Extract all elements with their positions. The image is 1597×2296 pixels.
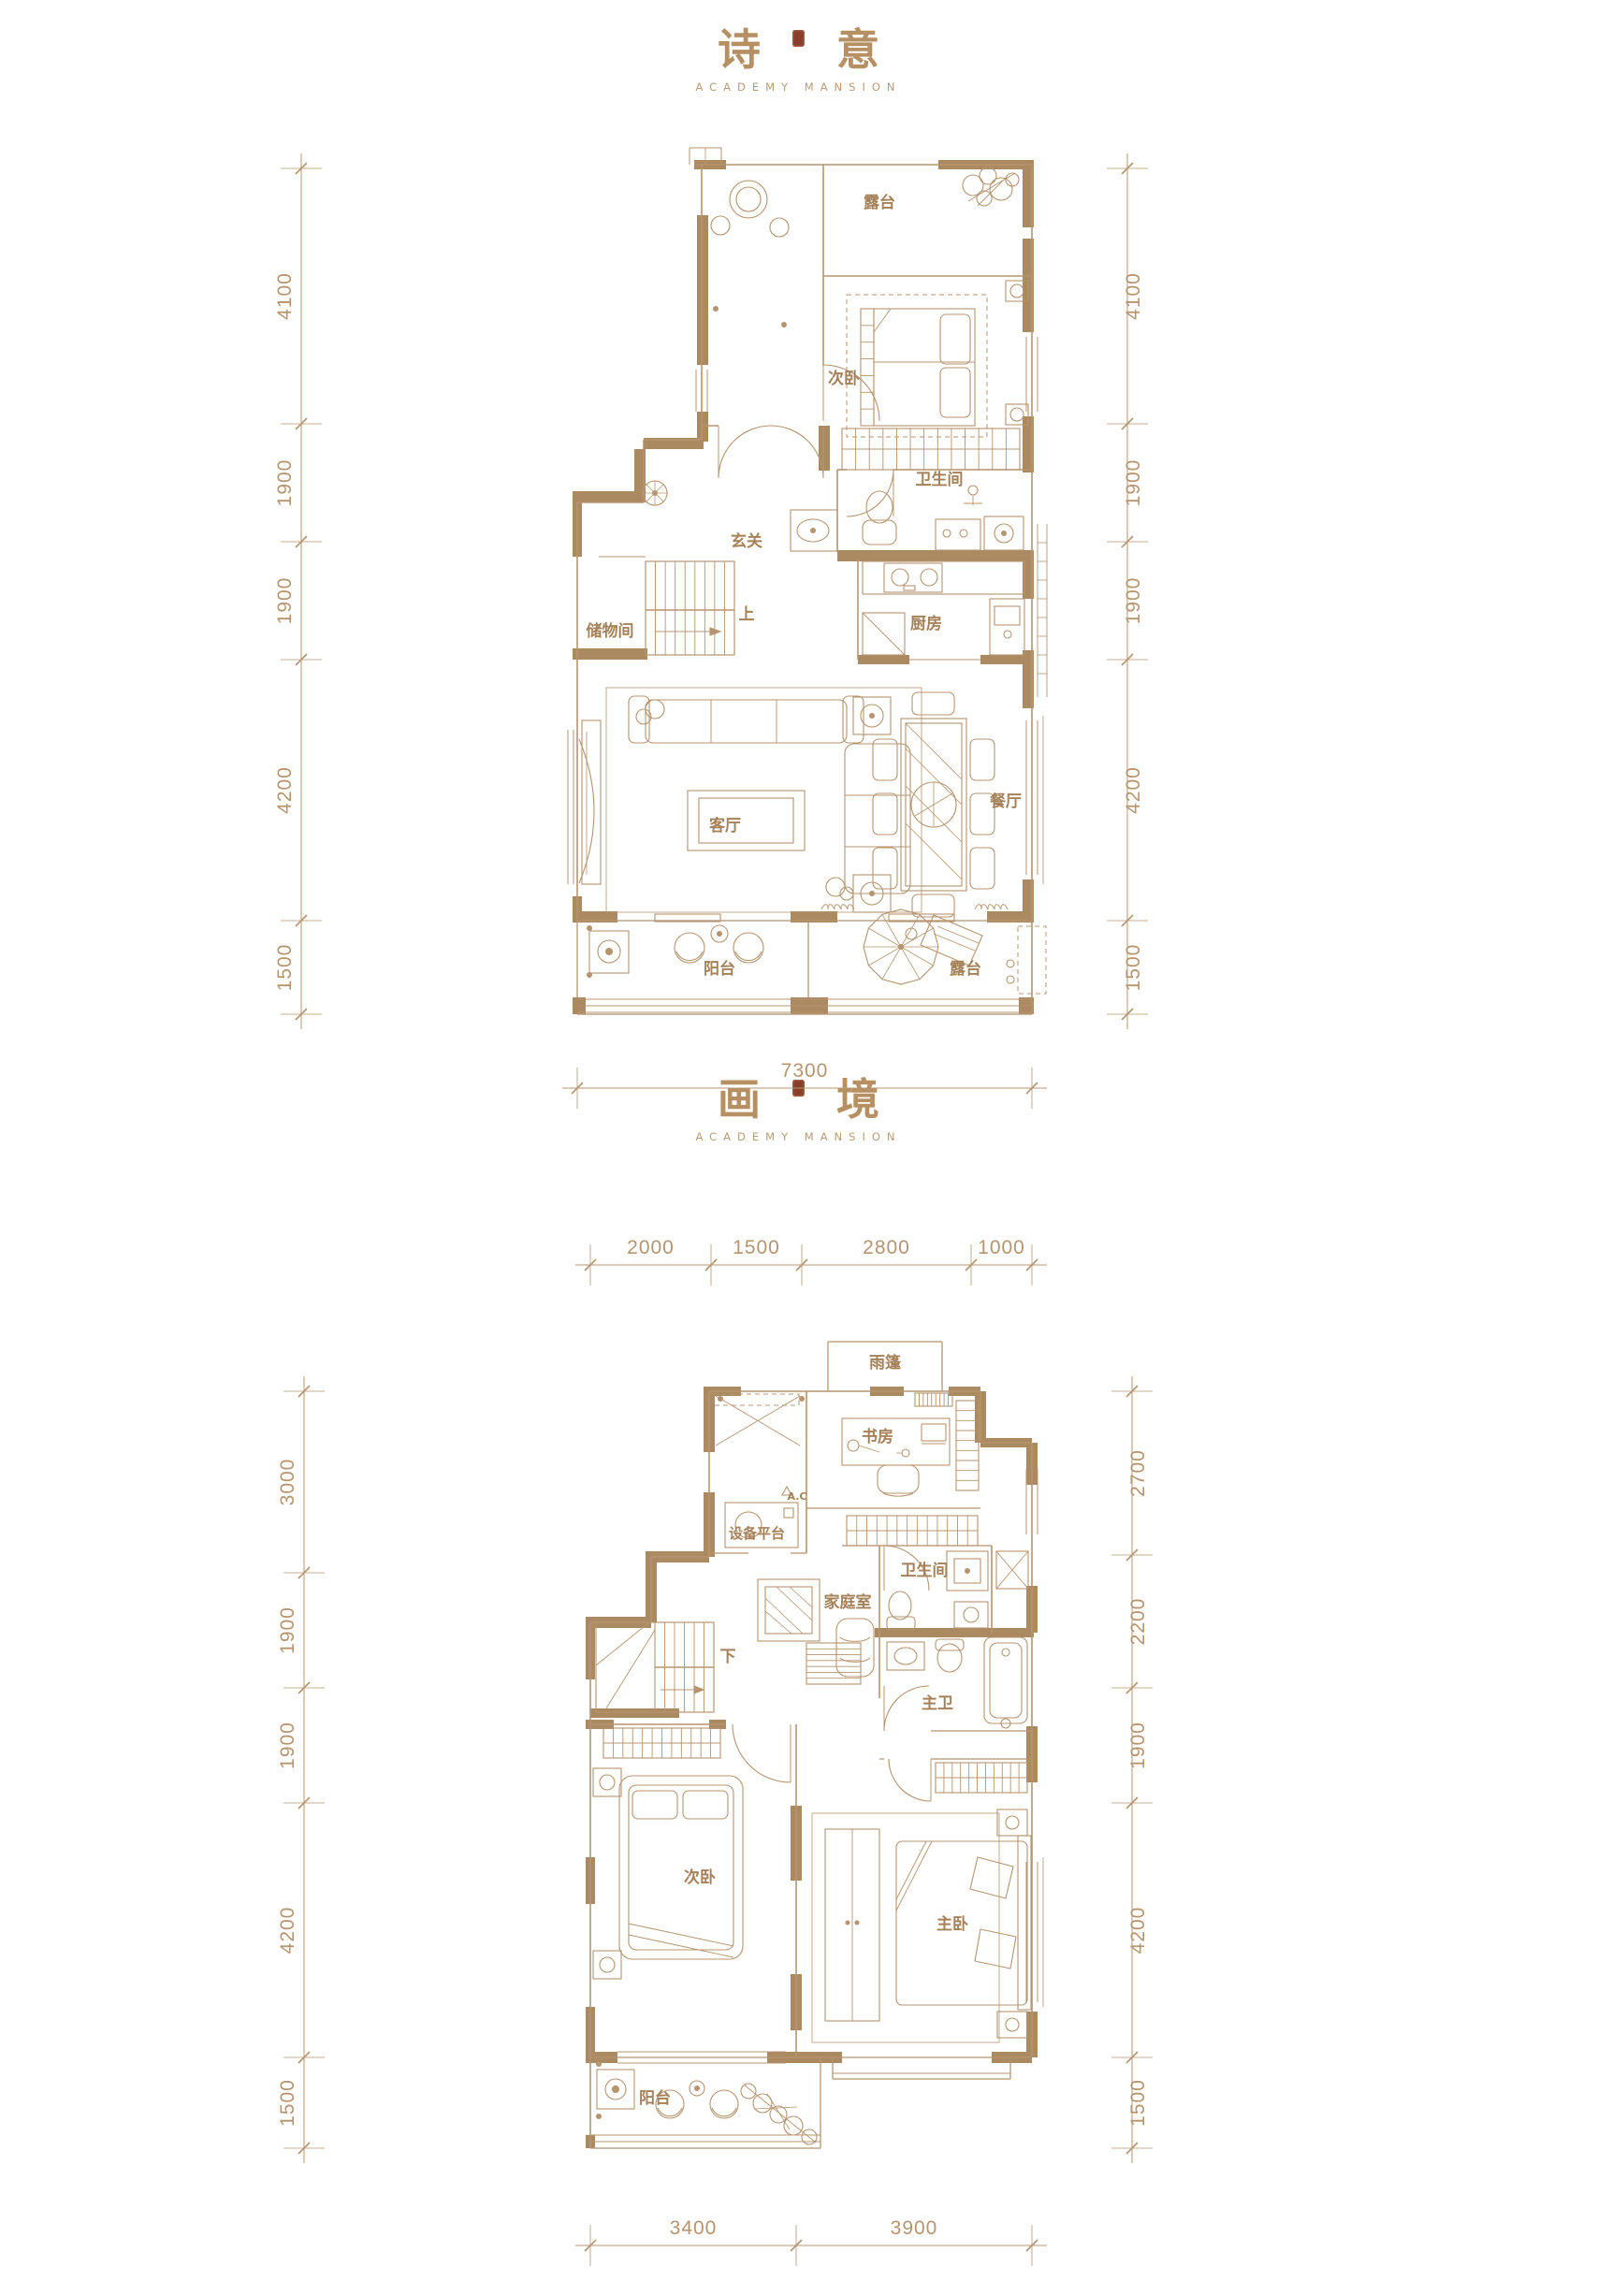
room-label-bathroom: 卫生间 [916,470,964,489]
room-label-storage: 储物间 [587,621,634,641]
dim-label-plan1-left-0: 4100 [274,272,296,320]
dim-label-plan2-top-0: 2000 [627,1237,675,1258]
dim-label-plan2-bottom-0: 3400 [670,2217,718,2239]
room-label-bathroom: 卫生间 [901,1561,949,1580]
dim-label-plan2-top-3: 1000 [978,1237,1025,1258]
room-label-canopy: 雨篷 [869,1353,902,1373]
plan2-drawing [586,1342,1043,2148]
dim-label-plan2-right-0: 2700 [1127,1449,1149,1497]
room-label-terrace_bottom: 露台 [950,959,981,979]
room-label-kitchen: 厨房 [910,614,942,633]
dim-label-plan2-bottom-1: 3900 [891,2217,938,2239]
dim-label-plan2-right-1: 2200 [1127,1598,1149,1646]
dim-label-plan1-left-4: 1500 [274,944,296,992]
room-label-dining: 餐厅 [990,792,1022,811]
dim-label-plan2-left-1: 1900 [277,1606,298,1654]
room-label-equipment: 设备平台 [729,1525,785,1542]
dim-label-plan1-left-1: 1900 [274,459,296,507]
dim-label-plan1-right-0: 4100 [1123,272,1144,320]
dim-label-plan1-left-2: 1900 [274,577,296,625]
room-label-family: 家庭室 [824,1592,872,1612]
floorplan-canvas: 4100190019004200150041001900190042001500… [0,0,1597,2296]
dim-label-plan2-left-0: 3000 [277,1459,298,1506]
plan1-drawing [568,148,1047,1014]
dim-label-plan2-right-2: 1900 [1127,1722,1149,1769]
room-label-master_bath: 主卫 [922,1693,953,1713]
room-labels: 露台次卧玄关卫生间储物间上厨房客厅餐厅阳台露台雨篷书房设备平台A.C卫生间家庭室… [587,193,1023,2108]
room-label-terrace_top: 露台 [864,193,895,212]
room-label-ac: A.C [788,1490,807,1503]
room-label-stairs_up: 上 [739,605,755,624]
room-label-master: 主卧 [936,1914,968,1934]
dim-label-plan1-right-1: 1900 [1123,459,1144,507]
dim-label-plan2-top-1: 1500 [733,1237,780,1258]
room-label-bedroom2: 次卧 [684,1867,716,1887]
dim-label-plan2-left-2: 1900 [277,1722,298,1769]
room-label-hallway: 玄关 [731,531,762,551]
room-label-bedroom2: 次卧 [828,369,860,388]
room-label-balcony: 阳台 [704,959,735,979]
dim-label-plan2-right-3: 4200 [1127,1907,1149,1955]
dim-label-plan1-right-2: 1900 [1123,577,1144,625]
room-label-living: 客厅 [708,816,741,836]
dim-label-plan1-bottom-0: 7300 [781,1060,829,1082]
room-label-balcony: 阳台 [639,2088,671,2108]
dim-label-plan2-top-2: 2800 [863,1237,910,1258]
floorplan-sheet: 诗 意 ACADEMY MANSION 画 境 ACADEMY MANSION … [0,0,1597,2296]
dim-label-plan1-right-4: 1500 [1123,944,1144,992]
dim-label-plan1-right-3: 4200 [1123,766,1144,814]
room-label-stairs_down: 下 [720,1648,736,1666]
dim-label-plan2-right-4: 1500 [1127,2079,1149,2127]
dim-label-plan2-left-4: 1500 [277,2079,298,2127]
dim-label-plan2-left-3: 4200 [277,1907,298,1955]
dim-label-plan1-left-3: 4200 [274,766,296,814]
room-label-study: 书房 [862,1427,893,1446]
